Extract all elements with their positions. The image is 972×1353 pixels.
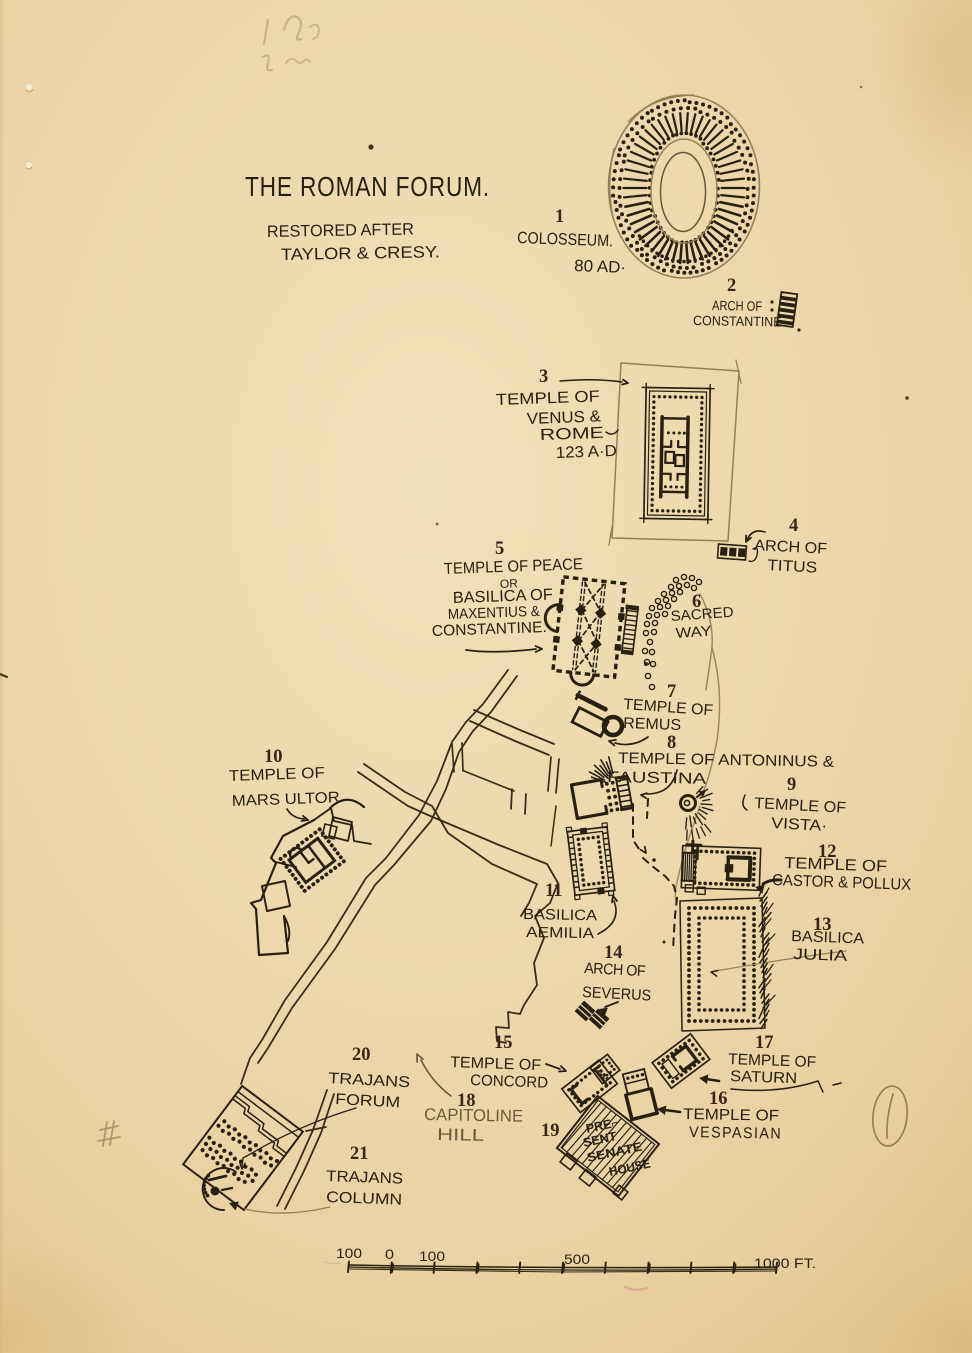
svg-text:100: 100 — [419, 1248, 445, 1264]
svg-text:THE ROMAN FORUM.: THE ROMAN FORUM. — [245, 171, 490, 202]
svg-text:9: 9 — [787, 775, 796, 795]
svg-text:80 AD·: 80 AD· — [574, 257, 627, 277]
svg-text:1: 1 — [555, 207, 564, 227]
svg-text:TEMPLE OF: TEMPLE OF — [229, 765, 326, 785]
svg-text:5: 5 — [495, 539, 504, 559]
svg-text:TAYLOR & CRESY.: TAYLOR & CRESY. — [281, 243, 440, 264]
svg-text:CONSTANTINE.: CONSTANTINE. — [693, 313, 785, 330]
svg-text:REMUS: REMUS — [623, 715, 682, 734]
svg-text:14: 14 — [604, 943, 623, 963]
svg-text:3: 3 — [539, 367, 548, 387]
svg-text:WAY: WAY — [675, 623, 712, 641]
svg-text:TRAJANS: TRAJANS — [326, 1168, 404, 1188]
svg-text:17: 17 — [755, 1033, 774, 1053]
svg-text:TEMPLE OF: TEMPLE OF — [683, 1106, 779, 1125]
svg-text:TEMPLE OF: TEMPLE OF — [496, 388, 601, 409]
svg-text:19: 19 — [541, 1121, 560, 1141]
svg-text:15: 15 — [494, 1033, 513, 1053]
svg-text:0: 0 — [385, 1246, 394, 1262]
svg-text:COLUMN: COLUMN — [326, 1189, 403, 1209]
svg-text:TEMPLE OF: TEMPLE OF — [450, 1054, 542, 1074]
svg-text:4: 4 — [789, 516, 798, 536]
svg-text:20: 20 — [352, 1045, 371, 1065]
svg-text:BASILICA: BASILICA — [791, 928, 865, 948]
svg-text:1000 FT.: 1000 FT. — [754, 1255, 816, 1271]
svg-text:CAPITOLINE: CAPITOLINE — [424, 1105, 523, 1126]
svg-text:TITUS: TITUS — [767, 557, 818, 577]
svg-text:SEVERUS: SEVERUS — [582, 984, 652, 1005]
svg-text:ROME: ROME — [540, 425, 605, 444]
svg-text:ARCH OF: ARCH OF — [584, 960, 646, 980]
svg-text:ARCH OF: ARCH OF — [712, 298, 762, 314]
svg-text:10: 10 — [264, 747, 283, 767]
svg-text:CONCORD: CONCORD — [470, 1072, 549, 1092]
svg-text:11: 11 — [545, 881, 562, 901]
svg-text:COLOSSEUM.: COLOSSEUM. — [517, 229, 614, 250]
svg-text:500: 500 — [564, 1251, 590, 1267]
svg-text:AEMILIA: AEMILIA — [526, 924, 594, 942]
svg-text:VISTA·: VISTA· — [771, 815, 828, 835]
svg-text:BASILICA: BASILICA — [523, 906, 597, 924]
svg-text:FAUSTINA: FAUSTINA — [607, 769, 707, 788]
svg-text:SATURN: SATURN — [730, 1068, 798, 1087]
svg-text:123 A·D: 123 A·D — [556, 443, 618, 462]
svg-text:HILL: HILL — [437, 1125, 484, 1145]
svg-text:VESPASIAN: VESPASIAN — [689, 1124, 782, 1143]
svg-text:2: 2 — [727, 276, 736, 296]
svg-text:RESTORED AFTER: RESTORED AFTER — [267, 220, 414, 241]
svg-text:FORUM: FORUM — [335, 1091, 401, 1111]
svg-text:JULIA: JULIA — [793, 946, 848, 965]
svg-text:100: 100 — [336, 1245, 362, 1261]
svg-text:21: 21 — [350, 1144, 369, 1164]
